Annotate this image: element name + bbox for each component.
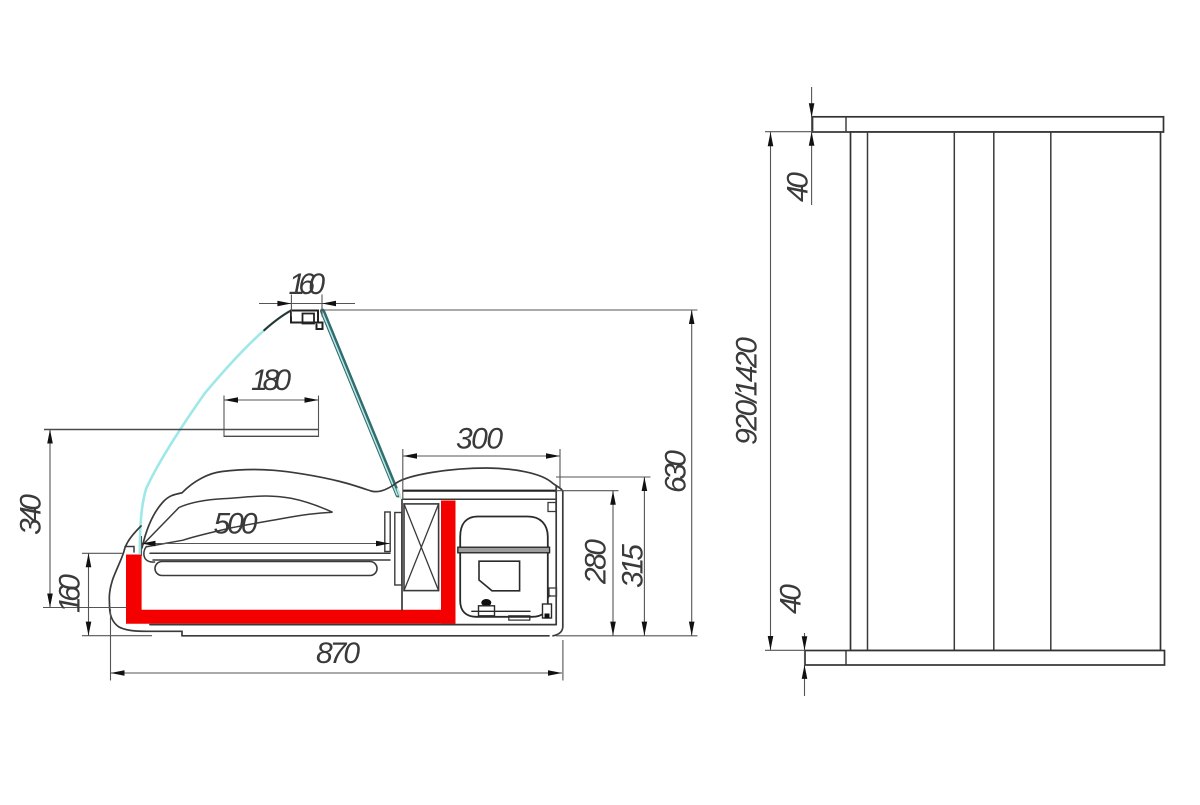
svg-text:500: 500	[214, 508, 258, 541]
svg-text:40: 40	[775, 584, 808, 614]
svg-text:280: 280	[580, 539, 613, 585]
svg-text:160: 160	[289, 268, 326, 301]
svg-text:160: 160	[54, 574, 87, 613]
svg-text:180: 180	[251, 364, 291, 397]
svg-text:315: 315	[617, 544, 650, 588]
svg-text:630: 630	[660, 450, 693, 493]
svg-text:340: 340	[15, 494, 48, 535]
svg-text:40: 40	[782, 172, 815, 202]
svg-text:300: 300	[456, 423, 503, 456]
svg-text:920/1420: 920/1420	[731, 337, 764, 445]
svg-text:870: 870	[316, 637, 360, 670]
